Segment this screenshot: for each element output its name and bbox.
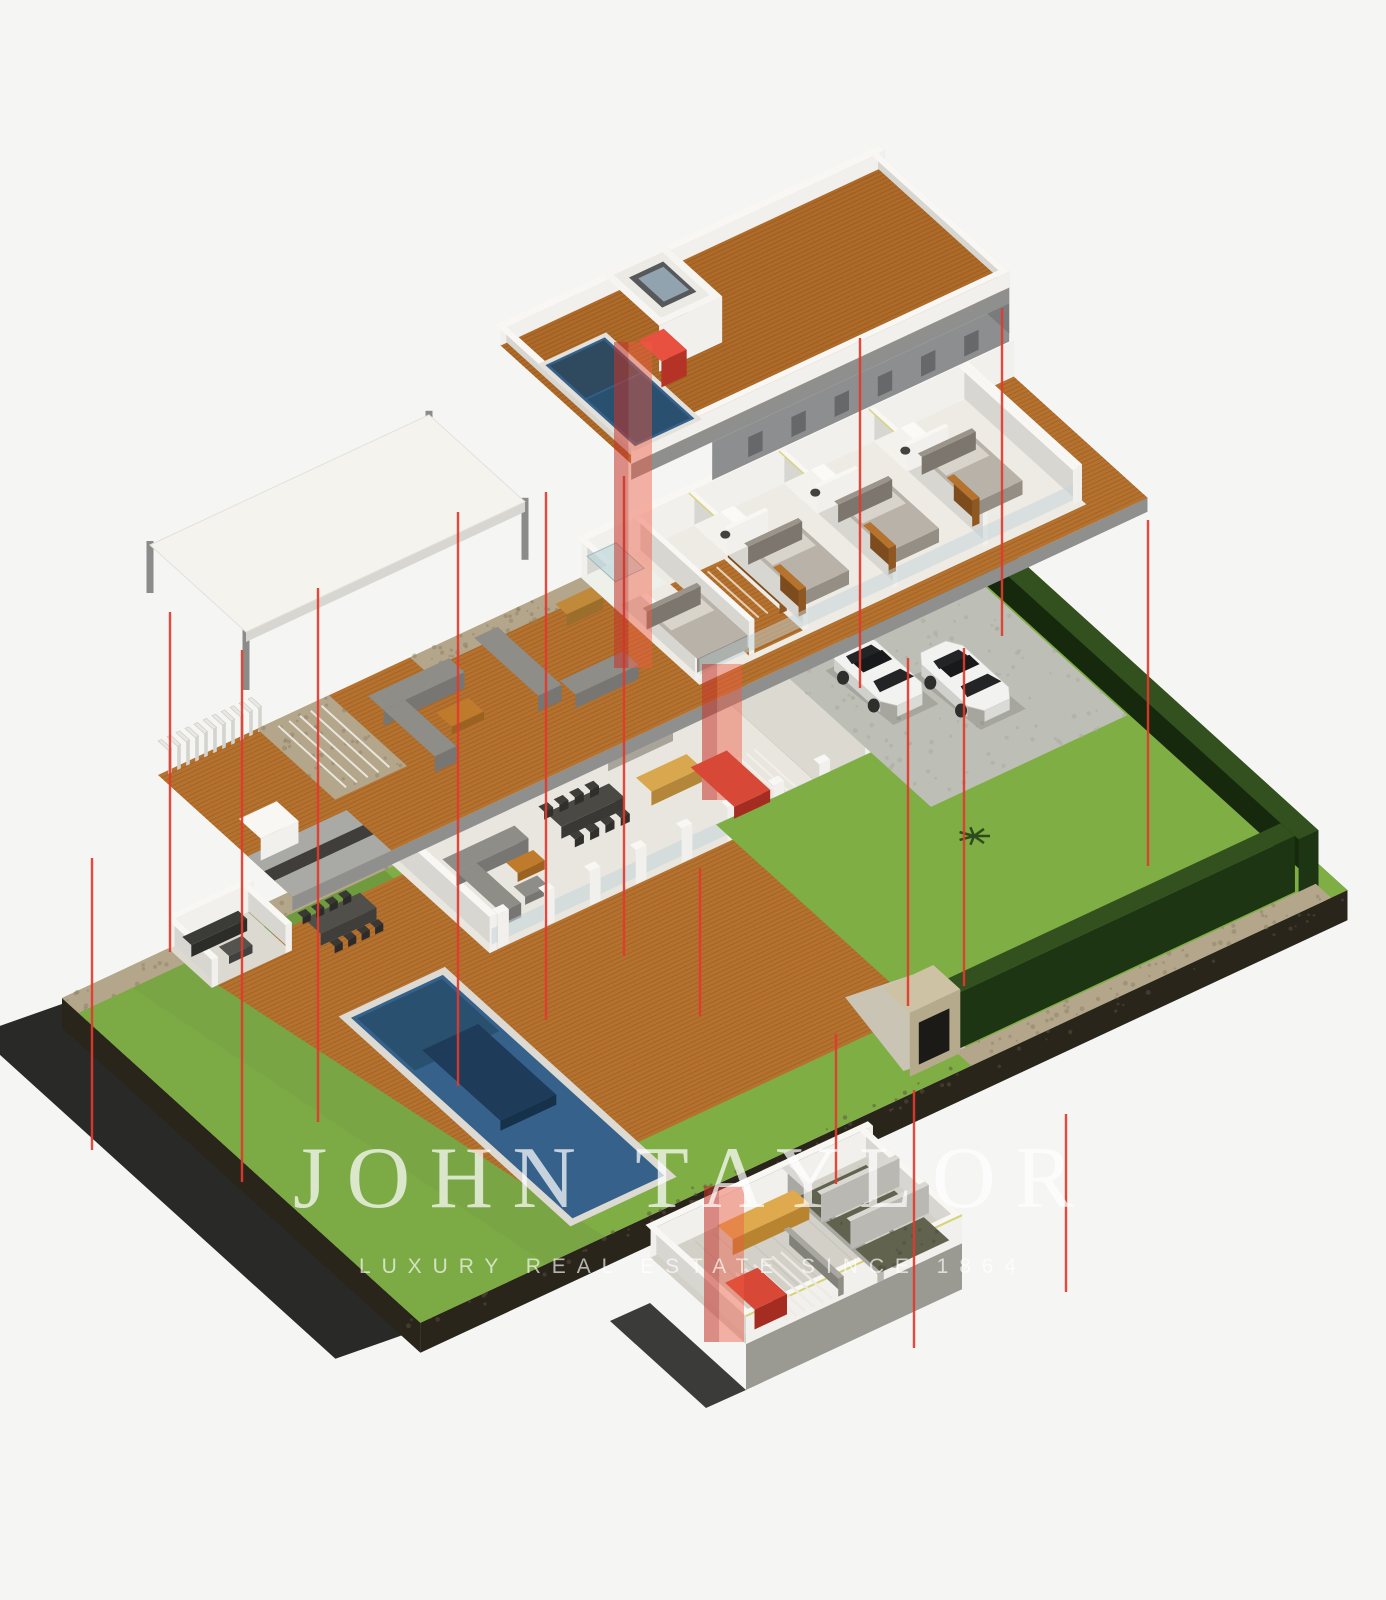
exploded-villa-rendering: JOHN TAYLOR LUXURY REAL ESTATE SINCE 186… — [0, 0, 1386, 1600]
axonometric-scene — [0, 0, 1386, 1600]
